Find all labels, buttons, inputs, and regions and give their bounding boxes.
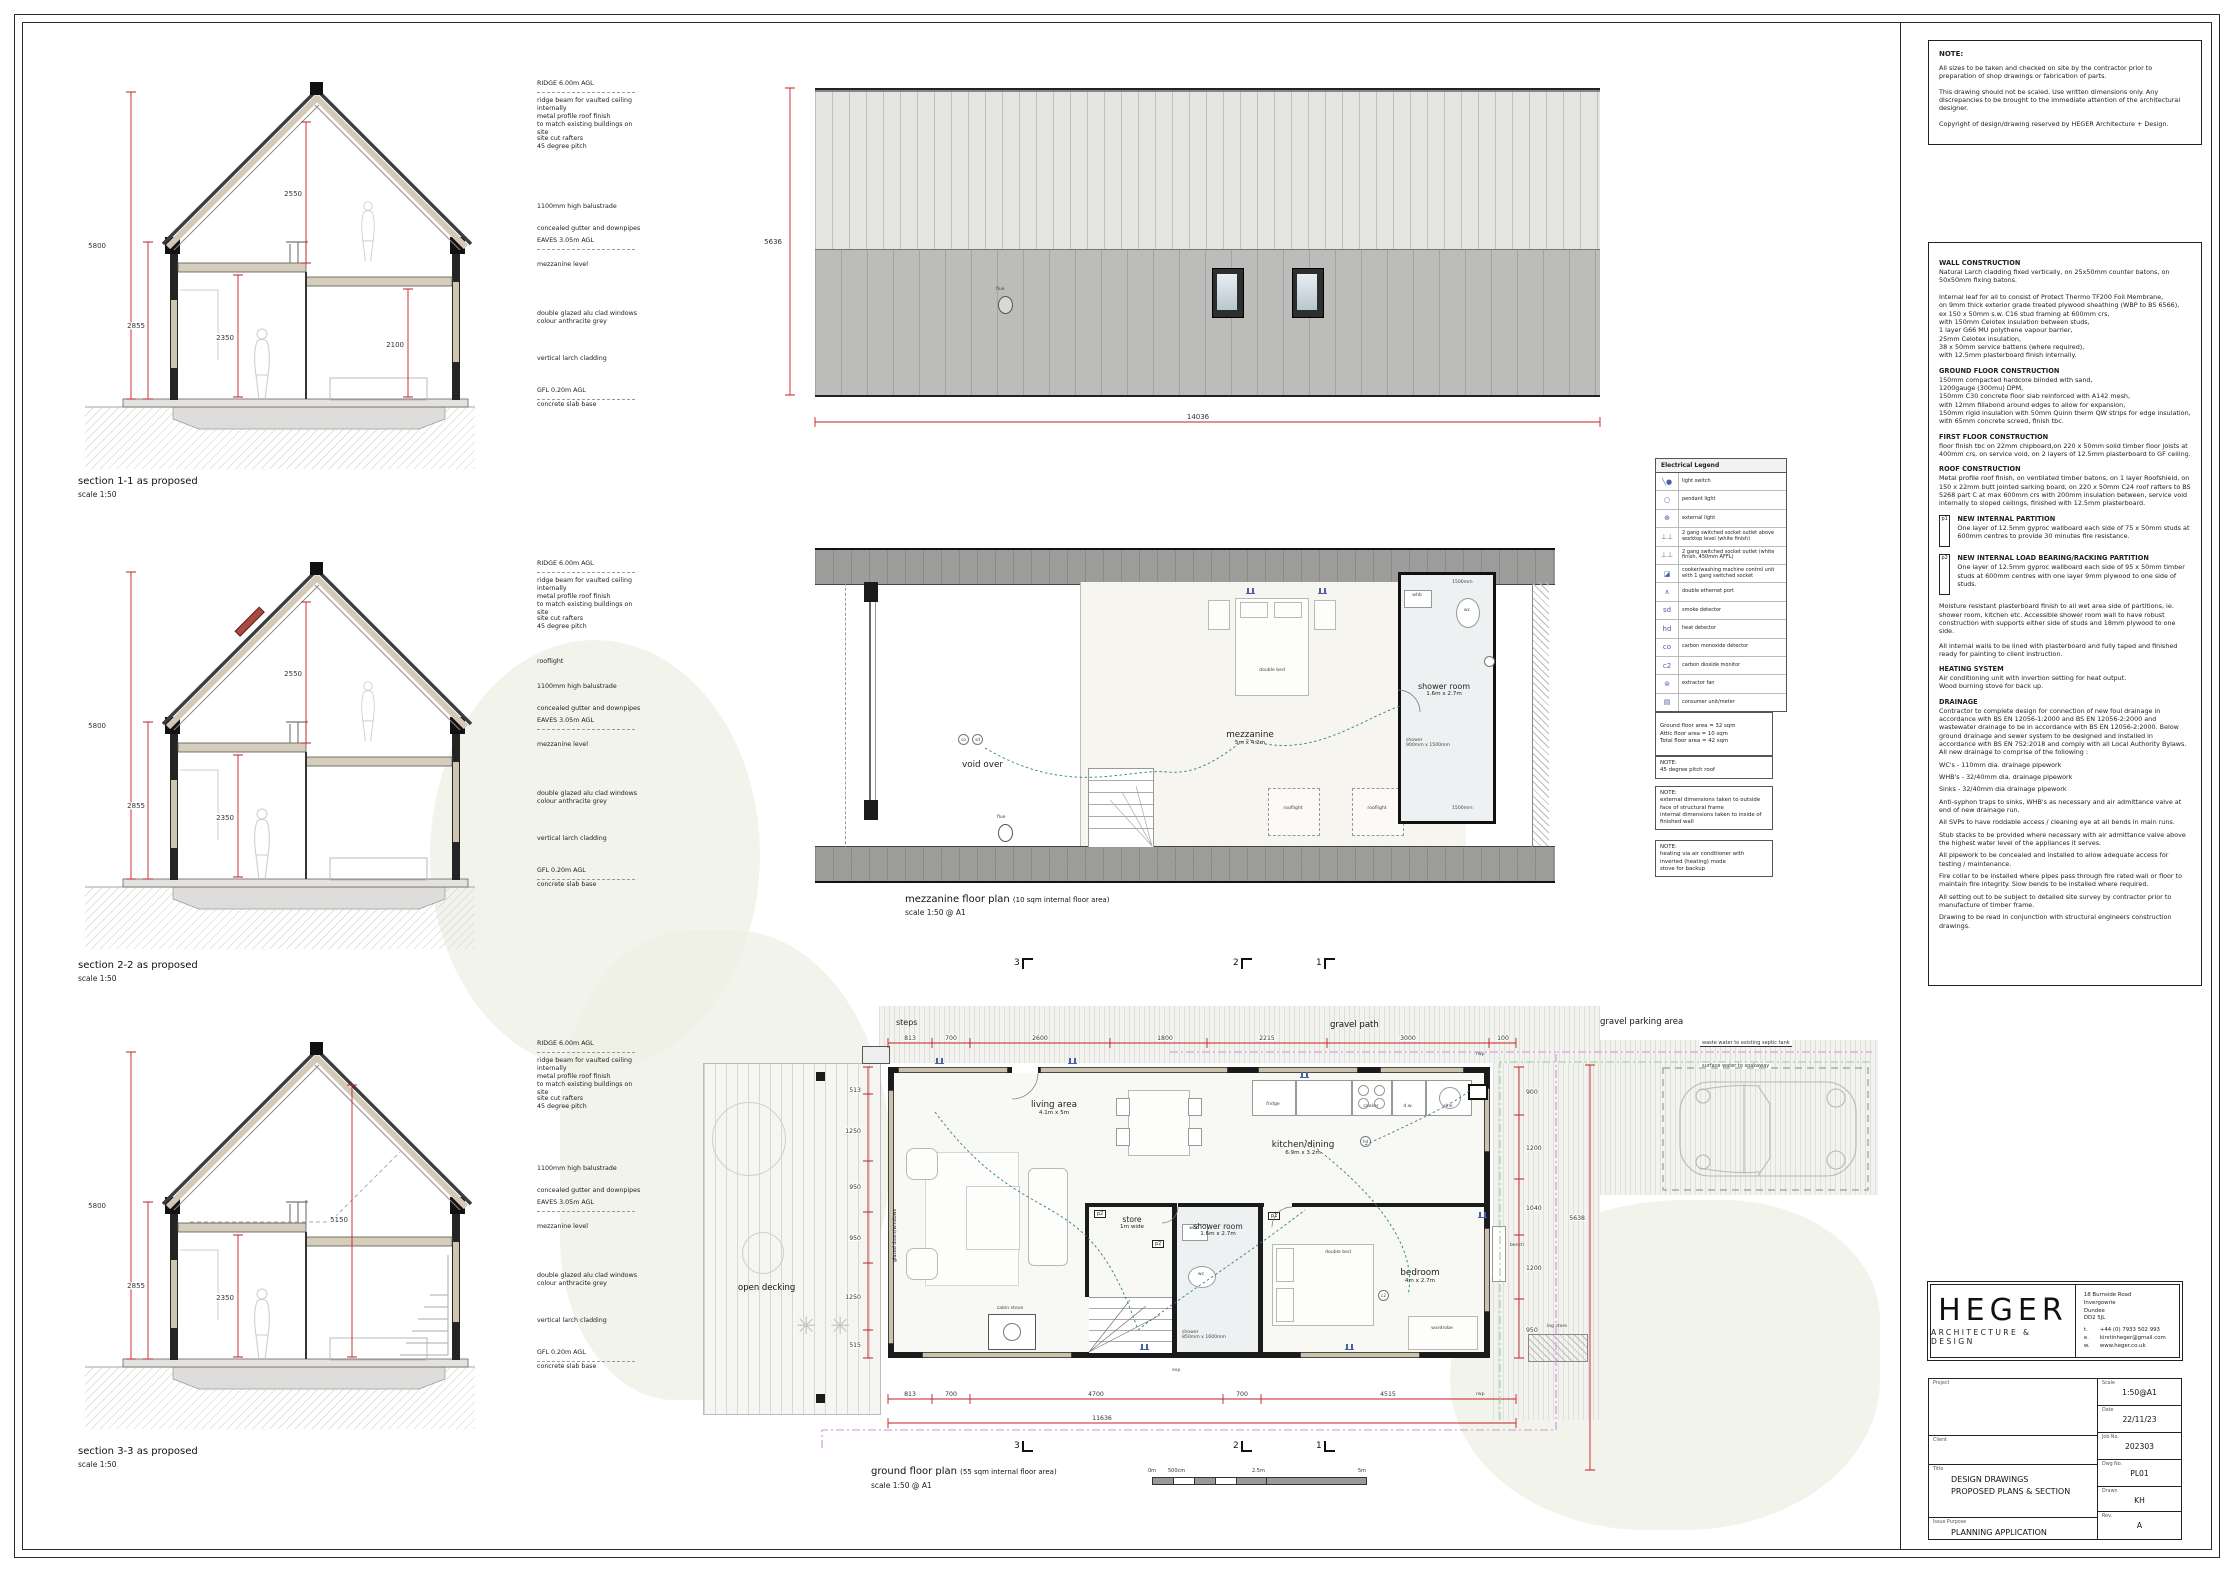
- svg-text:2855: 2855: [127, 1282, 145, 1290]
- svg-text:700: 700: [945, 1035, 957, 1042]
- svg-text:1200: 1200: [1526, 1265, 1542, 1272]
- legend-symbol-icon: ◪: [1656, 565, 1679, 582]
- svg-text:700: 700: [1236, 1391, 1248, 1398]
- drainage-paragraph: All pipework to be concealed and install…: [1939, 851, 2191, 868]
- svg-text:2100: 2100: [386, 341, 404, 349]
- company-tagline: ARCHITECTURE & DESIGN: [1931, 1328, 2075, 1346]
- heating-body: Air conditioning unit with invertion set…: [1939, 674, 2191, 691]
- partition-tag: p2: [1939, 554, 1950, 595]
- legend-symbol-icon: ⊕: [1656, 510, 1679, 527]
- legend-row: ▤ consumer unit/meter: [1656, 694, 1786, 711]
- section3-dims: [126, 1052, 357, 1359]
- partition-tag: p1: [1939, 515, 1950, 548]
- contact-line: e.kirstinheger@gmail.com: [2084, 1335, 2171, 1343]
- legend-rows: ╲● light switch ○ pendant light ⊕ extern…: [1656, 473, 1786, 711]
- floor-area-line: Attic floor area = 10 sqm: [1660, 731, 1768, 738]
- contact-line: w.www.heger.co.uk: [2084, 1343, 2171, 1351]
- svg-text:2215: 2215: [1259, 1035, 1275, 1042]
- note-heading: NOTE:: [1939, 50, 2191, 58]
- legend-row: ⊕ external light: [1656, 510, 1786, 528]
- svg-text:2350: 2350: [216, 814, 234, 822]
- door-swings: [1012, 786, 1292, 1352]
- legend-symbol-icon: ○: [1656, 491, 1679, 508]
- address-line: Invergowrie: [2084, 1300, 2171, 1308]
- svg-text:14036: 14036: [1187, 413, 1210, 421]
- construction-section: GROUND FLOOR CONSTRUCTION 150mm compacte…: [1939, 367, 2191, 426]
- legend-label: cooker/washing machine control unit with…: [1679, 567, 1786, 581]
- svg-text:515: 515: [849, 1342, 861, 1349]
- legend-label: pendant light: [1679, 496, 1786, 504]
- construction-paragraph: Moisture resistant plasterboard finish t…: [1939, 602, 2191, 635]
- floor-area-line: Ground floor area = 32 sqm: [1660, 723, 1768, 730]
- tb-project: Project: [1929, 1379, 2097, 1436]
- tb-rev: Rev.A: [2098, 1512, 2181, 1539]
- legend-label: consumer unit/meter: [1679, 699, 1786, 707]
- legend-symbol-icon: sd: [1656, 602, 1679, 619]
- legend-title: Electrical Legend: [1656, 459, 1786, 473]
- legend-row: hd heat detector: [1656, 620, 1786, 638]
- svg-text:5800: 5800: [88, 242, 106, 250]
- svg-text:5800: 5800: [88, 722, 106, 730]
- note-paragraph: This drawing should not be scaled. Use w…: [1939, 88, 2191, 113]
- legend-row: ⊥⊥ 2 gang switched socket outlet above w…: [1656, 528, 1786, 546]
- legend-symbol-icon: ▤: [1656, 694, 1679, 711]
- linework-overlay: 5800 2855 2550 2350 2100 5800 2855 2550 …: [0, 0, 2234, 1572]
- tb-client: Client: [1929, 1436, 2097, 1465]
- pitch-note-box: NOTE: 45 degree pitch roof: [1655, 756, 1773, 779]
- legend-row: sd smoke detector: [1656, 602, 1786, 620]
- construction-notes-box: WALL CONSTRUCTION Natural Larch cladding…: [1928, 242, 2202, 986]
- tb-title: Title DESIGN DRAWINGS PROPOSED PLANS & S…: [1929, 1465, 2097, 1518]
- heating-note-box: NOTE: heating via air conditioner with i…: [1655, 840, 1773, 877]
- svg-text:813: 813: [904, 1035, 916, 1042]
- legend-label: carbon monoxide detector: [1679, 643, 1786, 651]
- svg-text:4700: 4700: [1088, 1391, 1104, 1398]
- address-line: 18 Burnside Road: [2084, 1292, 2171, 1300]
- svg-text:5150: 5150: [330, 1216, 348, 1224]
- mezz-cabling: [985, 706, 1400, 777]
- note-box: NOTE: All sizes to be taken and checked …: [1928, 40, 2202, 145]
- partition-note: p1 NEW INTERNAL PARTITION One layer of 1…: [1939, 515, 2191, 548]
- svg-text:900: 900: [1526, 1089, 1538, 1096]
- svg-text:2550: 2550: [284, 190, 302, 198]
- legend-label: light switch: [1679, 478, 1786, 486]
- legend-symbol-icon: ∧: [1656, 583, 1679, 600]
- svg-text:2855: 2855: [127, 802, 145, 810]
- tb-drawn: DrawnKH: [2098, 1487, 2181, 1512]
- company-address: 18 Burnside RoadInvergowrieDundeeDD2 5JL…: [2076, 1285, 2179, 1357]
- tb-dwg: Dwg No.PL01: [2098, 1460, 2181, 1487]
- legend-row: co carbon monoxide detector: [1656, 639, 1786, 657]
- drainage-paragraph: Contractor to complete design for connec…: [1939, 707, 2191, 757]
- legend-label: 2 gang switched socket outlet above work…: [1679, 530, 1786, 544]
- dims-note-box: NOTE: external dimensions taken to outsi…: [1655, 786, 1773, 830]
- svg-text:950: 950: [849, 1184, 861, 1191]
- legend-row: c2 carbon dioxide monitor: [1656, 657, 1786, 675]
- title-block: Project Client Title DESIGN DRAWINGS PRO…: [1928, 1378, 2182, 1540]
- legend-symbol-icon: hd: [1656, 620, 1679, 637]
- drainage-paragraph: Fire collar to be installed where pipes …: [1939, 872, 2191, 889]
- legend-row: ○ pendant light: [1656, 491, 1786, 509]
- svg-text:1040: 1040: [1526, 1205, 1542, 1212]
- tb-issue: Issue Purpose PLANNING APPLICATION: [1929, 1518, 2097, 1539]
- svg-text:950: 950: [849, 1235, 861, 1242]
- legend-symbol-icon: co: [1656, 639, 1679, 656]
- floor-areas-box: Ground floor area = 32 sqmAttic floor ar…: [1655, 712, 1773, 756]
- legend-symbol-icon: ⊥⊥: [1656, 528, 1679, 545]
- svg-text:11636: 11636: [1092, 1415, 1112, 1422]
- svg-text:1250: 1250: [845, 1128, 861, 1135]
- legend-row: ⊥⊥ 2 gang switched socket outlet (white …: [1656, 547, 1786, 565]
- svg-text:2600: 2600: [1032, 1035, 1048, 1042]
- drainage-paragraph: All SVPs to have roddable access / clean…: [1939, 818, 2191, 826]
- legend-row: ⊚ extractor fan: [1656, 675, 1786, 693]
- company-logo: HEGER ARCHITECTURE & DESIGN: [1931, 1285, 2076, 1357]
- svg-text:100: 100: [1497, 1035, 1509, 1042]
- drainage-heading: DRAINAGE: [1939, 698, 2191, 706]
- legend-row: ∧ double ethernet port: [1656, 583, 1786, 601]
- svg-text:513: 513: [849, 1087, 861, 1094]
- drainage-paragraph: Anti-syphon traps to sinks, WHB's as nec…: [1939, 798, 2191, 815]
- svg-text:950: 950: [1526, 1327, 1538, 1334]
- svg-text:2350: 2350: [216, 334, 234, 342]
- legend-label: carbon dioxide monitor: [1679, 662, 1786, 670]
- svg-text:5800: 5800: [88, 1202, 106, 1210]
- svg-text:3000: 3000: [1400, 1035, 1416, 1042]
- svg-text:5636: 5636: [764, 238, 782, 246]
- construction-section: WALL CONSTRUCTION Natural Larch cladding…: [1939, 259, 2191, 360]
- gf-cabling: [935, 1090, 1470, 1330]
- legend-symbol-icon: ⊥⊥: [1656, 547, 1679, 564]
- company-block: HEGER ARCHITECTURE & DESIGN 18 Burnside …: [1930, 1284, 2180, 1358]
- tb-date: Date22/11/23: [2098, 1406, 2181, 1433]
- address-line: DD2 5JL: [2084, 1315, 2171, 1323]
- drainage-paragraph: Sinks - 32/40mm dia drainage pipework: [1939, 785, 2191, 793]
- electrical-legend: Electrical Legend ╲● light switch ○ pend…: [1655, 458, 1787, 712]
- legend-label: extractor fan: [1679, 680, 1786, 688]
- svg-text:2350: 2350: [216, 1294, 234, 1302]
- legend-label: 2 gang switched socket outlet (white fin…: [1679, 549, 1786, 563]
- gf-dims: [863, 1038, 1595, 1470]
- drainage-paragraph: WHB's - 32/40mm dia. drainage pipework: [1939, 773, 2191, 781]
- contact-line: t.+44 (0) 7933 502 993: [2084, 1327, 2171, 1335]
- construction-section: ROOF CONSTRUCTION Metal profile roof fin…: [1939, 465, 2191, 507]
- address-line: Dundee: [2084, 1308, 2171, 1316]
- legend-row: ◪ cooker/washing machine control unit wi…: [1656, 565, 1786, 583]
- note-paragraph: Copyright of design/drawing reserved by …: [1939, 120, 2191, 128]
- floor-area-line: Total floor area = 42 sqm: [1660, 738, 1768, 745]
- legend-symbol-icon: ⊚: [1656, 675, 1679, 692]
- svg-text:1250: 1250: [845, 1294, 861, 1301]
- partition-note: p2 NEW INTERNAL LOAD BEARING/RACKING PAR…: [1939, 554, 2191, 595]
- company-name: HEGER: [1938, 1296, 2068, 1326]
- drainage-paragraph: Stub stacks to be provided where necessa…: [1939, 831, 2191, 848]
- svg-text:2855: 2855: [127, 322, 145, 330]
- svg-text:2550: 2550: [284, 670, 302, 678]
- svg-text:1200: 1200: [1526, 1145, 1542, 1152]
- legend-label: double ethernet port: [1679, 588, 1786, 596]
- legend-label: heat detector: [1679, 625, 1786, 633]
- drainage-paragraph: All setting out to be subject to detaile…: [1939, 893, 2191, 910]
- construction-paragraph: All internal walls to be lined with plas…: [1939, 642, 2191, 659]
- svg-text:4515: 4515: [1380, 1391, 1396, 1398]
- roof-plan-dims: [785, 88, 1600, 427]
- drainage-paragraph: Drawing to be read in conjunction with s…: [1939, 913, 2191, 930]
- legend-row: ╲● light switch: [1656, 473, 1786, 491]
- section3-stairs: [190, 1152, 448, 1355]
- svg-text:813: 813: [904, 1391, 916, 1398]
- legend-symbol-icon: ╲●: [1656, 473, 1679, 490]
- heating-heading: HEATING SYSTEM: [1939, 665, 2191, 673]
- car-outline: [1680, 1082, 1856, 1176]
- tb-job: Job No.202303: [2098, 1433, 2181, 1460]
- drainage-paragraph: WC's - 110mm dia. drainage pipework: [1939, 761, 2191, 769]
- svg-text:5638: 5638: [1569, 1215, 1585, 1222]
- tb-scale: Scale1:50@A1: [2098, 1379, 2181, 1406]
- legend-label: external light: [1679, 515, 1786, 523]
- construction-section: FIRST FLOOR CONSTRUCTION floor finish tb…: [1939, 433, 2191, 459]
- waste-water-line: [822, 1052, 1872, 1448]
- note-paragraph: All sizes to be taken and checked on sit…: [1939, 64, 2191, 81]
- drawing-sheet: flue double bed rooflight rooflight flue…: [0, 0, 2234, 1572]
- svg-text:700: 700: [945, 1391, 957, 1398]
- legend-label: smoke detector: [1679, 607, 1786, 615]
- legend-symbol-icon: c2: [1656, 657, 1679, 674]
- svg-text:1800: 1800: [1157, 1035, 1173, 1042]
